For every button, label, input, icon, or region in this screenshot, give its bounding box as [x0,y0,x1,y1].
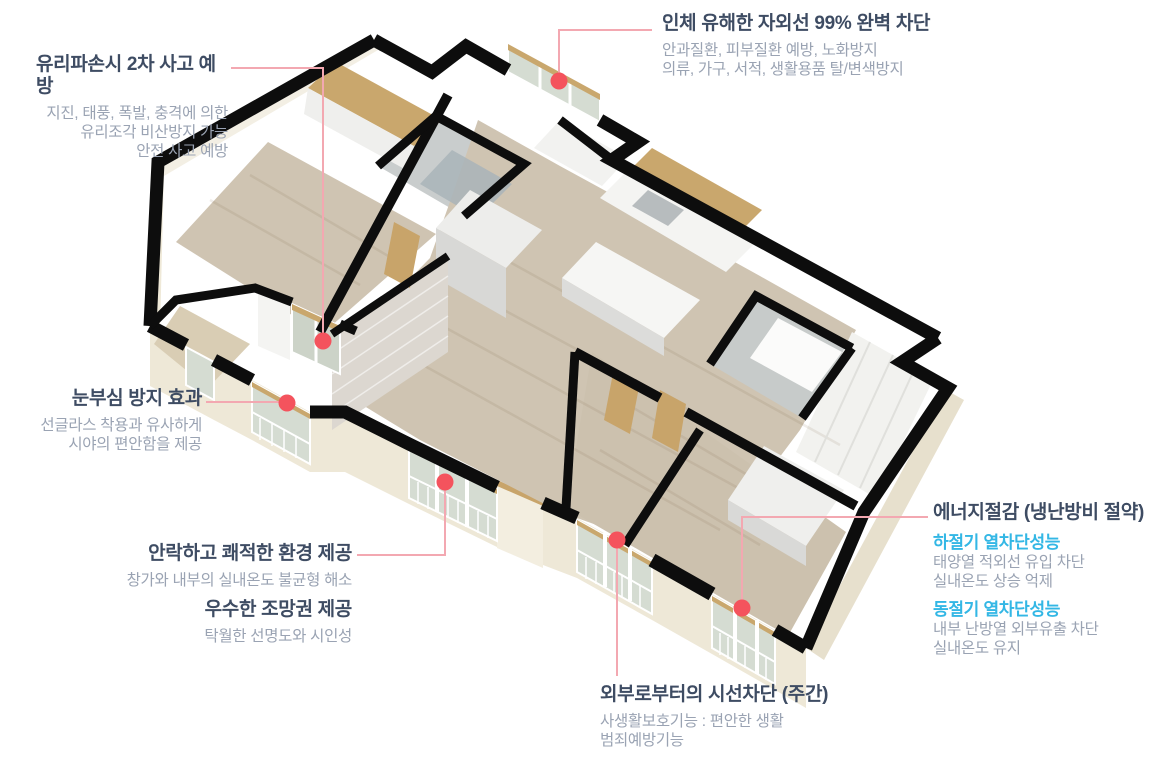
annotation-energy-line: 태양열 적외선 유입 차단 [933,553,1173,572]
annotation-glare-title: 눈부심 방지 효과 [28,388,202,410]
annotation-energy-block: 에너지절감 (냉난방비 절약) 하절기 열차단성능 태양열 적외선 유입 차단 … [933,502,1173,658]
annotation-energy-line: 내부 난방열 외부유출 차단 [933,620,1173,639]
annotation-energy-winter-heading: 동절기 열차단성능 [933,599,1173,620]
marker-dot-glare [279,395,296,412]
annotation-privacy-block: 외부로부터의 시선차단 (주간) 사생활보호기능 : 편안한 생활 범죄예방기능 [600,684,900,750]
annotation-comfort-title: 안락하고 쾌적한 환경 제공 [120,543,352,565]
annotation-breakage-block: 유리파손시 2차 사고 예방 지진, 태풍, 폭발, 충격에 의한 유리조각 비… [36,54,228,161]
annotation-energy-summer-heading: 하절기 열차단성능 [933,532,1173,553]
infographic-canvas: 인체 유해한 자외선 99% 완벽 차단 안과질환, 피부질환 예방, 노화방지… [0,0,1174,773]
marker-dot-privacy [609,532,626,549]
marker-dot-uv [551,73,568,90]
annotation-uv-line: 안과질환, 피부질환 예방, 노화방지 [662,41,992,60]
annotation-glare-line: 시야의 편안함을 제공 [28,435,202,454]
marker-dot-comfort [437,474,454,491]
annotation-comfort-line: 창가와 내부의 실내온도 불균형 해소 [120,571,352,590]
annotation-uv-line: 의류, 가구, 서적, 생활용품 탈/변색방지 [662,60,992,79]
annotation-energy-line: 실내온도 유지 [933,639,1173,658]
annotation-view-line: 탁월한 선명도와 시인성 [120,627,352,646]
annotation-breakage-line: 유리조각 비산방지 가능 [36,123,228,142]
annotation-privacy-title: 외부로부터의 시선차단 (주간) [600,684,900,706]
annotation-breakage-title: 유리파손시 2차 사고 예방 [36,54,228,98]
annotation-uv-title: 인체 유해한 자외선 99% 완벽 차단 [662,13,992,35]
annotation-uv-block: 인체 유해한 자외선 99% 완벽 차단 안과질환, 피부질환 예방, 노화방지… [662,13,992,79]
marker-dot-energy [734,600,751,617]
annotation-breakage-line: 안전 사고 예방 [36,142,228,161]
annotation-glare-block: 눈부심 방지 효과 선글라스 착용과 유사하게 시야의 편안함을 제공 [28,388,202,454]
annotation-comfort-block: 안락하고 쾌적한 환경 제공 창가와 내부의 실내온도 불균형 해소 [120,543,352,590]
leader-uv [559,30,652,81]
annotation-energy-line: 실내온도 상승 억제 [933,572,1173,591]
annotation-view-block: 우수한 조망권 제공 탁월한 선명도와 시인성 [120,599,352,646]
annotation-view-title: 우수한 조망권 제공 [120,599,352,621]
annotation-breakage-line: 지진, 태풍, 폭발, 충격에 의한 [36,104,228,123]
annotation-energy-title: 에너지절감 (냉난방비 절약) [933,502,1173,524]
marker-dot-breakage [315,333,332,350]
annotation-privacy-line: 사생활보호기능 : 편안한 생활 [600,712,900,731]
annotation-glare-line: 선글라스 착용과 유사하게 [28,416,202,435]
annotation-privacy-line: 범죄예방기능 [600,731,900,750]
